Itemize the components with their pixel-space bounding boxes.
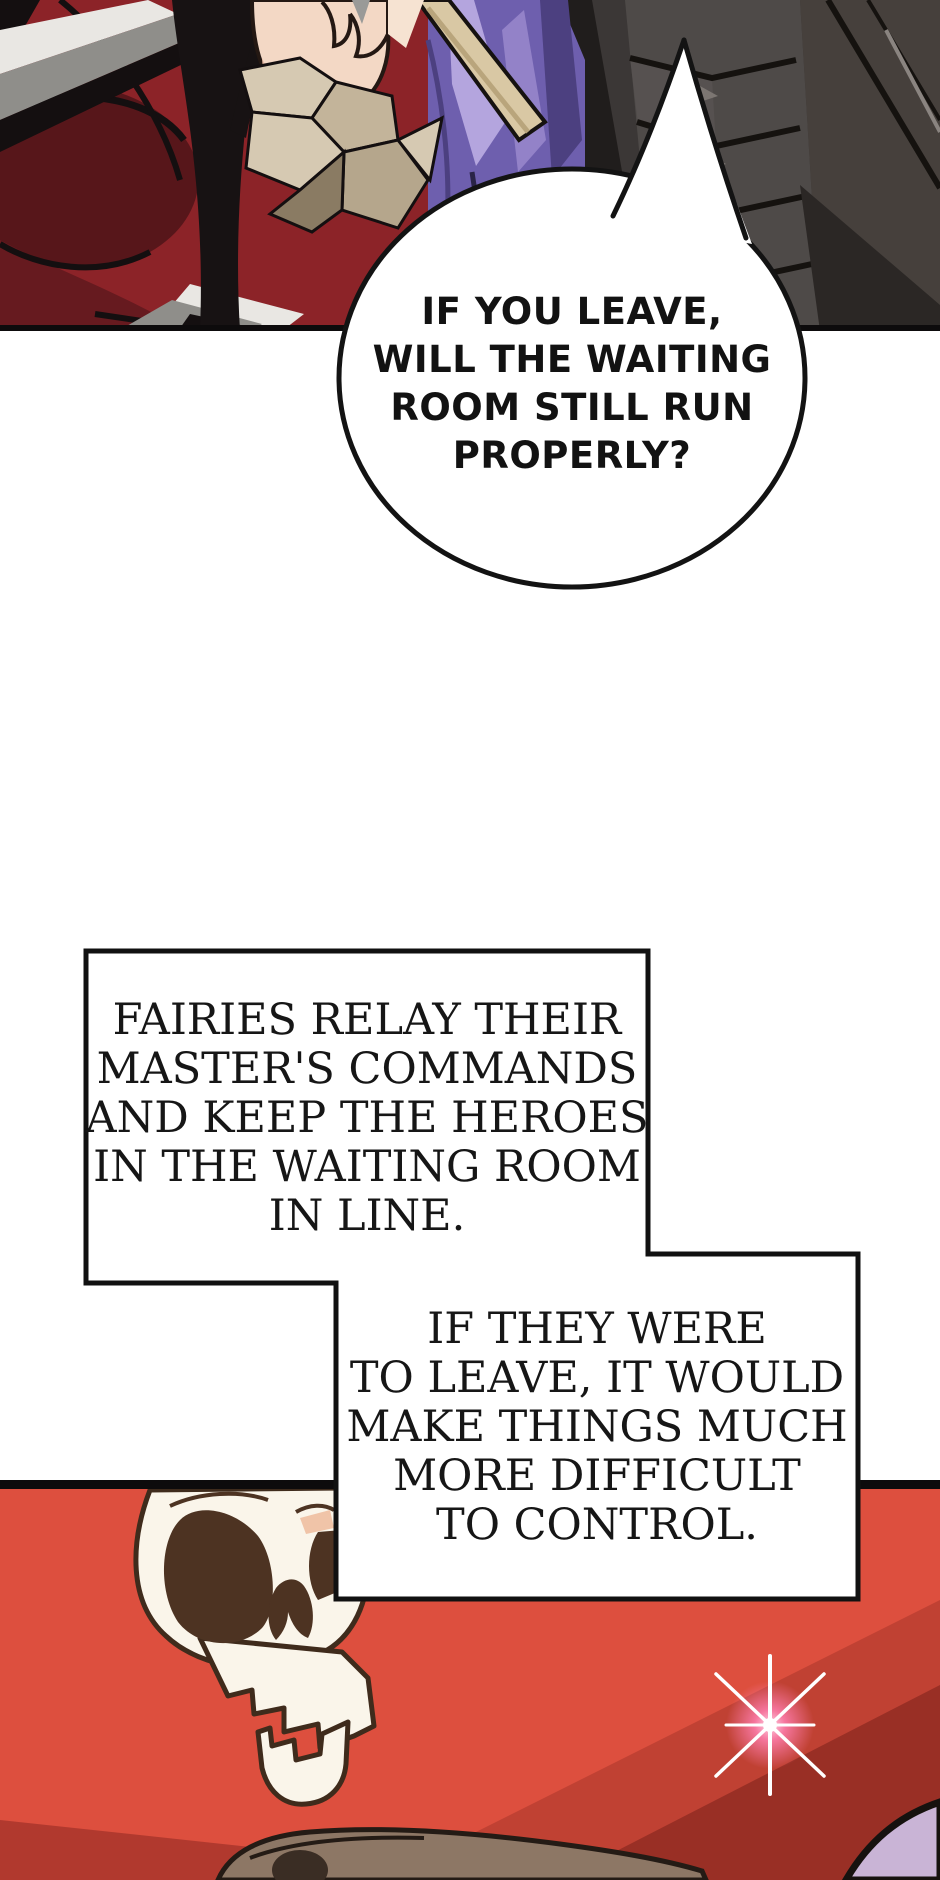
narration-box-1: FAIRIES RELAY THEIR MASTER'S COMMANDS AN… [86, 953, 648, 1283]
narration-line: TO CONTROL. [436, 1501, 758, 1550]
narration-line: MASTER'S COMMANDS [97, 1045, 638, 1094]
narration-line: MORE DIFFICULT [393, 1452, 801, 1501]
bubble-line: WILL THE WAITING [373, 336, 772, 384]
narration-line: FAIRIES RELAY THEIR [113, 996, 622, 1045]
narration-line: IN THE WAITING ROOM [93, 1143, 641, 1192]
bubble-line: ROOM STILL RUN [390, 384, 753, 432]
narration-line: IN LINE. [269, 1192, 466, 1241]
narration-line: MAKE THINGS MUCH [346, 1403, 847, 1452]
narration-line: TO LEAVE, IT WOULD [350, 1354, 844, 1403]
narration-line: AND KEEP THE HEROES [86, 1094, 649, 1143]
narration-line: IF THEY WERE [427, 1305, 766, 1354]
speech-bubble-text: IF YOU LEAVE, WILL THE WAITING ROOM STIL… [340, 288, 804, 480]
narration-box-2: IF THEY WERE TO LEAVE, IT WOULD MAKE THI… [336, 1256, 858, 1599]
bubble-line: IF YOU LEAVE, [421, 288, 722, 336]
bubble-line: PROPERLY? [453, 432, 692, 480]
speech-bubble-tail [612, 40, 752, 244]
